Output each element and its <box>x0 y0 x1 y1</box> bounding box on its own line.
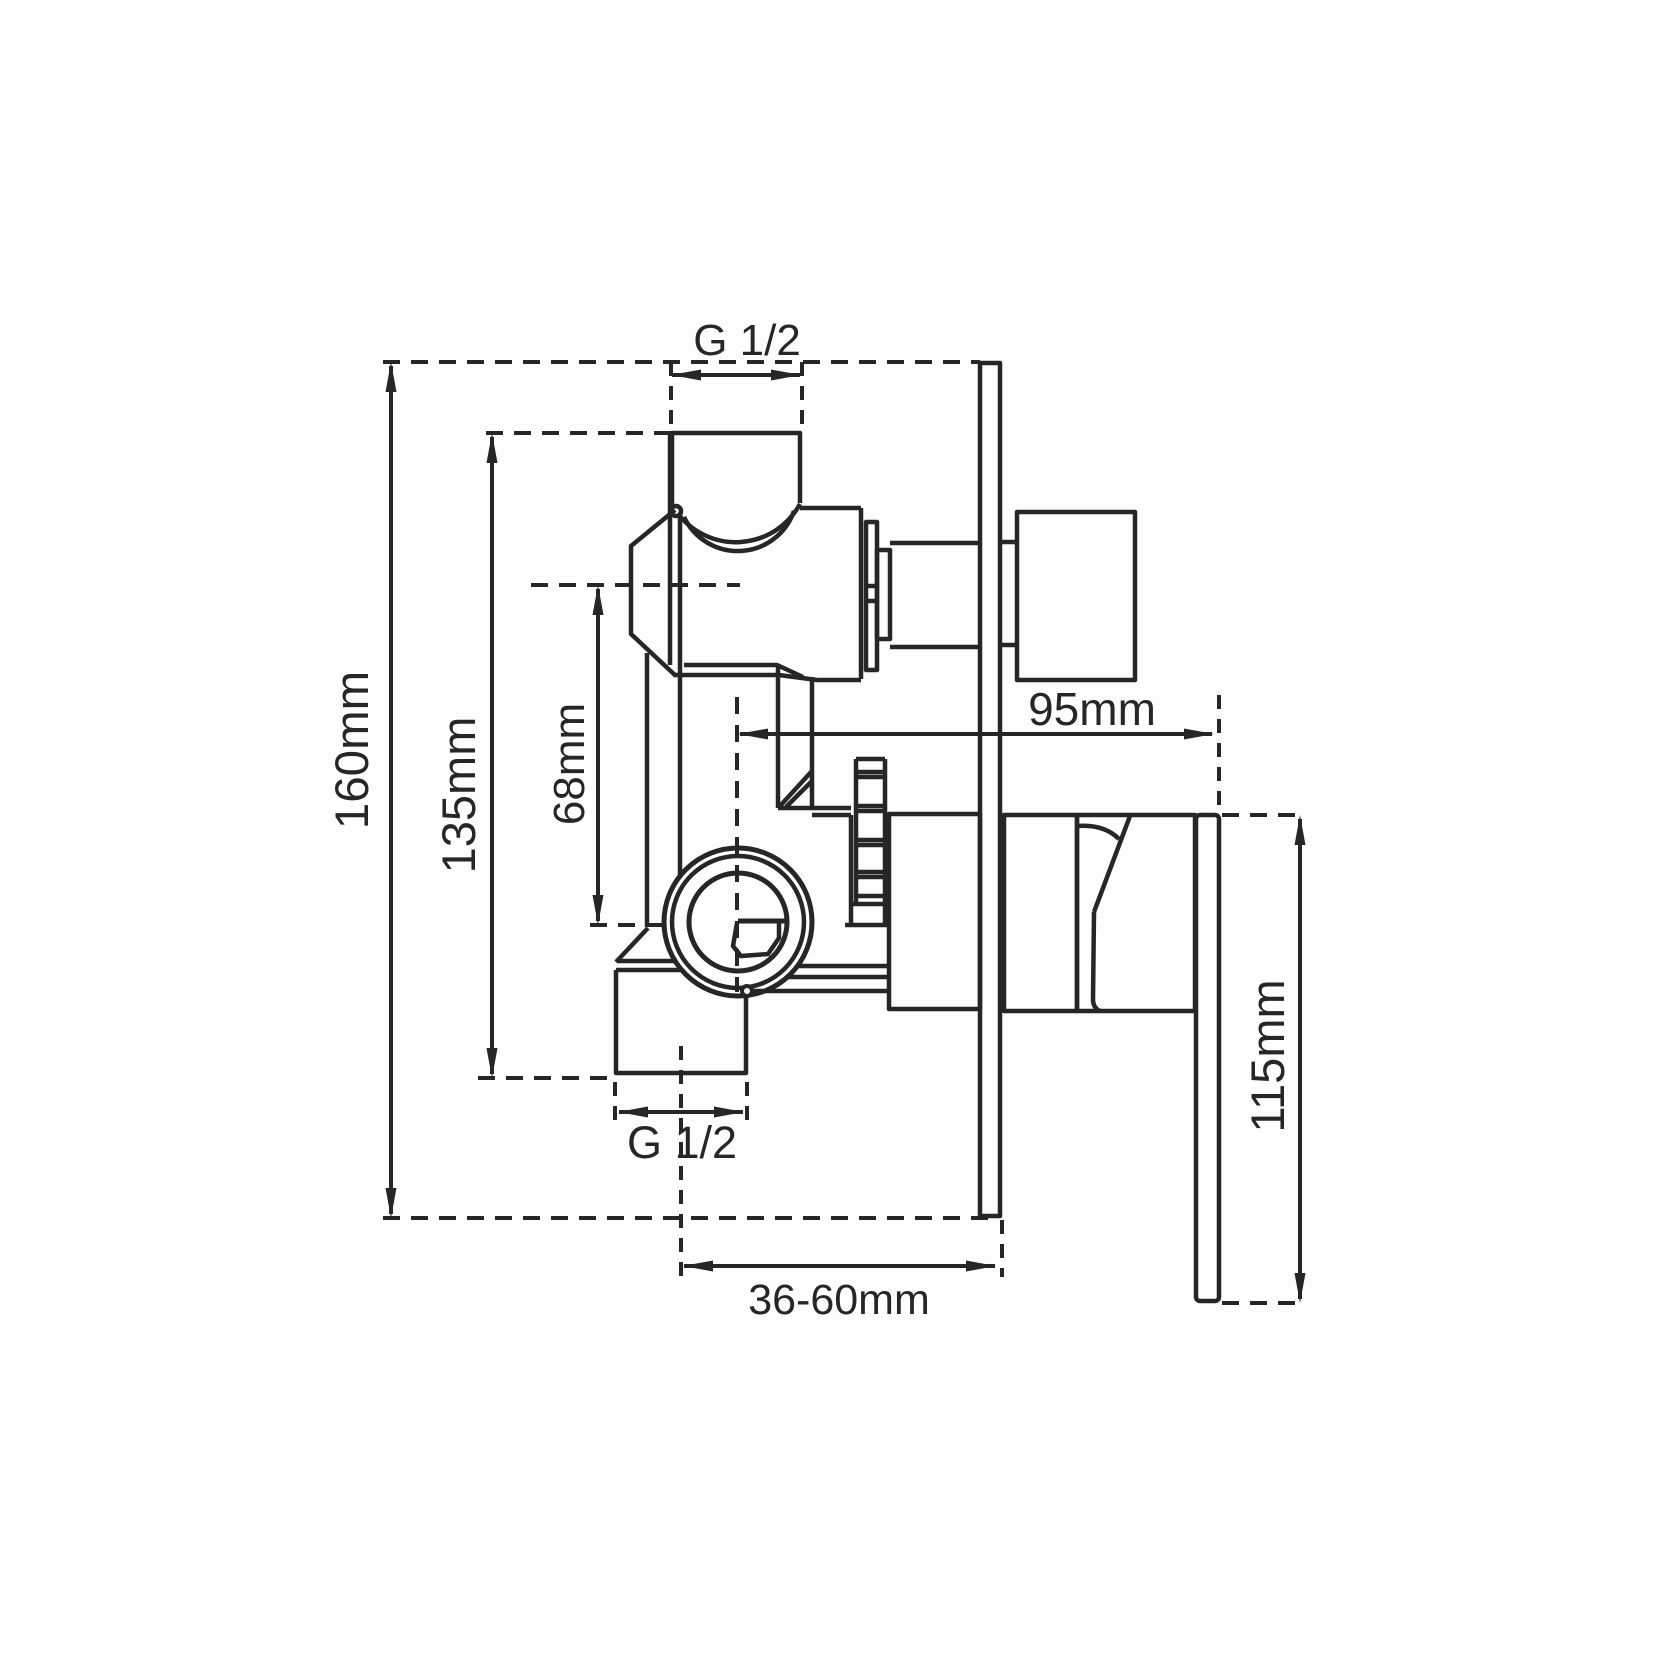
svg-text:115mm: 115mm <box>1241 979 1294 1132</box>
svg-text:68mm: 68mm <box>545 703 594 825</box>
svg-text:135mm: 135mm <box>432 717 485 874</box>
svg-text:G 1/2: G 1/2 <box>627 1117 737 1168</box>
svg-text:36-60mm: 36-60mm <box>748 1276 930 1324</box>
svg-text:95mm: 95mm <box>1028 683 1156 735</box>
svg-text:160mm: 160mm <box>326 671 379 829</box>
svg-text:G 1/2: G 1/2 <box>693 316 801 365</box>
